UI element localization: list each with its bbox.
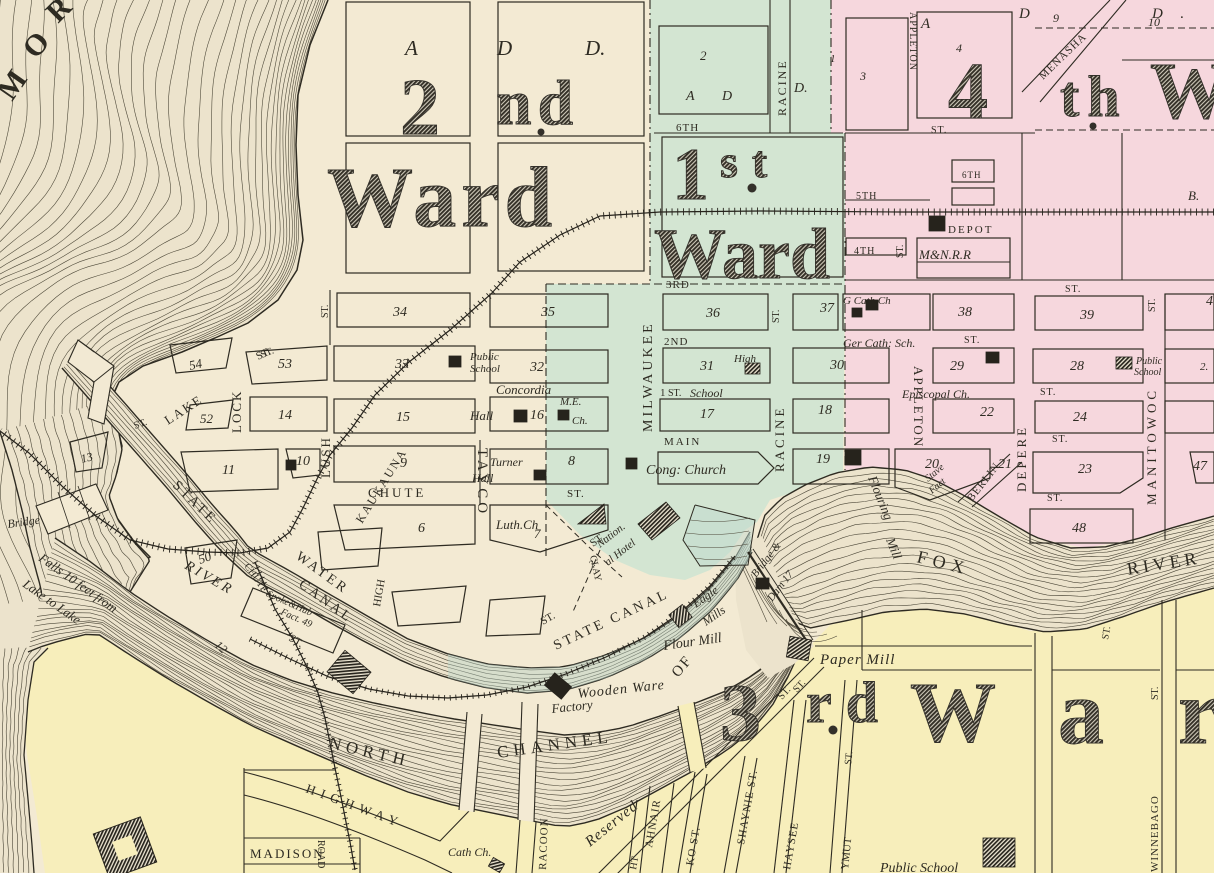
svg-text:Ch.: Ch. — [572, 415, 588, 427]
svg-text:30: 30 — [829, 358, 844, 373]
svg-text:36: 36 — [705, 306, 720, 321]
svg-text:A: A — [685, 89, 695, 104]
svg-text:3: 3 — [720, 667, 761, 758]
svg-text:31: 31 — [699, 359, 714, 374]
svg-text:17: 17 — [700, 407, 715, 422]
svg-text:33: 33 — [394, 357, 409, 372]
svg-text:rd: rd — [806, 670, 892, 735]
svg-text:Public: Public — [1135, 356, 1163, 367]
svg-text:Ward: Ward — [327, 149, 557, 245]
svg-text:DEPERE: DEPERE — [1014, 425, 1029, 492]
svg-text:RACOON: RACOON — [537, 817, 551, 870]
svg-text:ST.: ST. — [1100, 625, 1113, 640]
svg-text:22: 22 — [980, 405, 994, 420]
svg-text:W: W — [910, 664, 996, 760]
svg-text:Concordia: Concordia — [496, 382, 552, 397]
svg-text:24: 24 — [1073, 410, 1087, 425]
svg-text:10: 10 — [1148, 15, 1160, 29]
svg-text:2: 2 — [700, 48, 707, 63]
svg-text:ST.: ST. — [567, 488, 585, 500]
svg-text:11: 11 — [222, 463, 235, 478]
svg-text:nd: nd — [496, 67, 579, 138]
svg-text:2.: 2. — [1200, 361, 1208, 373]
svg-text:DEPOT: DEPOT — [948, 224, 993, 236]
svg-text:r: r — [1178, 661, 1214, 763]
svg-text:Turner: Turner — [490, 455, 523, 469]
svg-text:35: 35 — [540, 305, 555, 320]
svg-text:3: 3 — [859, 69, 866, 83]
svg-text:32: 32 — [529, 360, 544, 375]
svg-text:18: 18 — [818, 403, 832, 418]
svg-text:M&N.R.R: M&N.R.R — [918, 247, 971, 262]
svg-text:48: 48 — [1072, 521, 1086, 536]
svg-text:37: 37 — [819, 301, 835, 316]
svg-text:2: 2 — [400, 64, 440, 152]
svg-text:ST.: ST. — [320, 305, 331, 318]
svg-text:ROAD: ROAD — [315, 840, 326, 868]
svg-text:st: st — [720, 136, 781, 187]
svg-text:1: 1 — [672, 134, 709, 216]
svg-text:Public School: Public School — [879, 861, 958, 873]
svg-text:53: 53 — [278, 357, 292, 372]
svg-text:1: 1 — [830, 53, 836, 65]
svg-text:MANITOWOC: MANITOWOC — [1144, 387, 1159, 505]
svg-text:D: D — [721, 89, 732, 104]
svg-text:Luth.Ch: Luth.Ch — [495, 517, 538, 532]
svg-text:ST.: ST. — [771, 310, 782, 323]
svg-text:ST.: ST. — [1150, 687, 1161, 700]
svg-text:38: 38 — [957, 305, 972, 320]
svg-text:52: 52 — [200, 411, 214, 426]
svg-text:28: 28 — [1070, 359, 1084, 374]
svg-text:A: A — [403, 36, 418, 60]
svg-text:D.: D. — [793, 81, 808, 96]
svg-text:Paper Mill: Paper Mill — [819, 652, 895, 668]
svg-text:Public: Public — [469, 351, 499, 363]
svg-text:School: School — [1134, 367, 1161, 378]
svg-text:ST.: ST. — [1065, 284, 1081, 295]
svg-text:LOCK: LOCK — [229, 390, 244, 433]
svg-text:3RD: 3RD — [666, 279, 690, 291]
svg-text:39: 39 — [1079, 308, 1094, 323]
svg-text:LUSH: LUSH — [318, 436, 333, 478]
svg-text:MAIN: MAIN — [664, 436, 701, 448]
svg-text:ST.: ST. — [1052, 434, 1068, 445]
svg-text:B.: B. — [1188, 188, 1199, 203]
svg-text:D.: D. — [584, 36, 605, 60]
svg-text:1: 1 — [660, 387, 666, 399]
svg-text:D: D — [1018, 6, 1030, 22]
svg-text:6TH: 6TH — [676, 122, 699, 134]
svg-text:ST.: ST. — [668, 388, 681, 399]
svg-text:th: th — [1060, 64, 1128, 129]
svg-text:47: 47 — [1193, 459, 1208, 474]
svg-text:ST.: ST. — [1147, 299, 1158, 312]
svg-text:34: 34 — [392, 305, 407, 320]
svg-text:9: 9 — [1053, 11, 1059, 25]
svg-text:4: 4 — [1206, 294, 1213, 309]
svg-text:6TH: 6TH — [962, 170, 982, 180]
svg-text:16: 16 — [530, 408, 544, 423]
svg-text:2ND: 2ND — [664, 336, 688, 348]
svg-text:Hall: Hall — [469, 408, 494, 423]
svg-text:a: a — [1058, 661, 1104, 763]
svg-text:School: School — [690, 386, 723, 400]
svg-text:Hall: Hall — [471, 471, 494, 485]
svg-text:4: 4 — [956, 41, 962, 55]
svg-text:ST.: ST. — [964, 335, 980, 346]
svg-text:ST.: ST. — [1047, 493, 1063, 504]
svg-text:15: 15 — [396, 410, 410, 425]
svg-text:School: School — [470, 363, 500, 375]
svg-text:ST.: ST. — [895, 245, 906, 258]
svg-text:APPLETON: APPLETON — [907, 12, 918, 71]
svg-text:23: 23 — [1078, 462, 1092, 477]
svg-text:6: 6 — [418, 521, 425, 536]
svg-text:ST.: ST. — [843, 751, 855, 766]
svg-text:.: . — [1180, 6, 1184, 22]
svg-text:14: 14 — [278, 408, 292, 423]
svg-text:D: D — [496, 36, 512, 60]
svg-text:MILWAUKEE: MILWAUKEE — [641, 321, 656, 432]
svg-text:5TH: 5TH — [856, 191, 877, 202]
svg-text:WINNEBAGO: WINNEBAGO — [1149, 795, 1161, 872]
svg-text:APPLETON: APPLETON — [911, 366, 926, 448]
svg-text:ST.: ST. — [1040, 387, 1056, 398]
svg-text:HT: HT — [628, 855, 641, 870]
svg-text:Ger Cath: Sch.: Ger Cath: Sch. — [843, 336, 915, 350]
svg-text:8: 8 — [568, 454, 575, 469]
svg-text:19: 19 — [816, 452, 830, 467]
svg-text:MADISON: MADISON — [250, 846, 325, 861]
svg-text:RACINE: RACINE — [772, 406, 787, 472]
svg-text:Cong: Church: Cong: Church — [646, 463, 726, 478]
svg-text:10: 10 — [296, 454, 310, 469]
svg-text:29: 29 — [950, 359, 964, 374]
svg-text:4TH: 4TH — [854, 246, 875, 257]
svg-text:RACINE: RACINE — [775, 59, 789, 116]
svg-text:M.E.: M.E. — [559, 396, 581, 408]
svg-text:W: W — [1150, 48, 1214, 136]
svg-text:A: A — [920, 16, 931, 32]
svg-text:ST.: ST. — [931, 125, 947, 136]
svg-text:Cath Ch.: Cath Ch. — [448, 845, 491, 859]
svg-text:4: 4 — [948, 48, 988, 136]
